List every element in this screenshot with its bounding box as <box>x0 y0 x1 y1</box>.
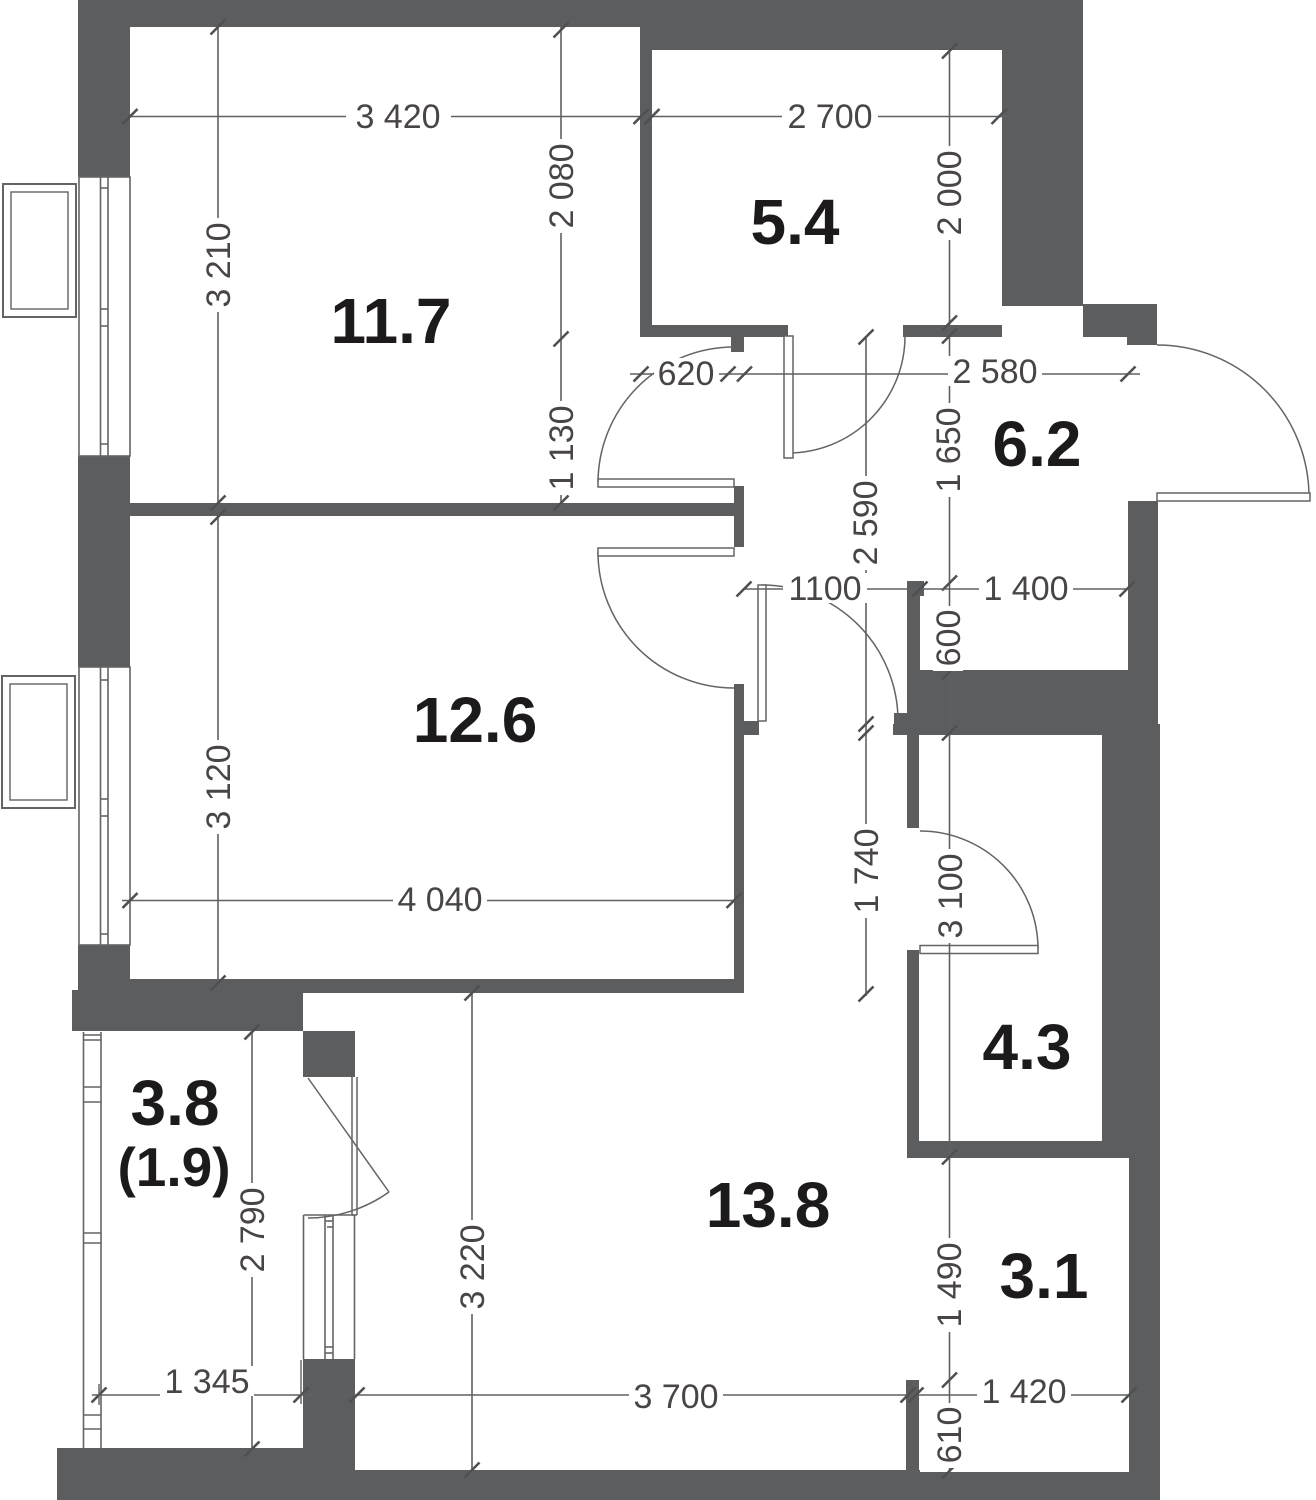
svg-text:13.8: 13.8 <box>706 1169 831 1241</box>
svg-text:1 400: 1 400 <box>983 570 1068 608</box>
svg-text:2 790: 2 790 <box>234 1187 272 1272</box>
svg-text:5.4: 5.4 <box>751 186 840 258</box>
svg-text:3 700: 3 700 <box>633 1378 718 1416</box>
svg-text:2 000: 2 000 <box>931 150 969 235</box>
svg-text:6.2: 6.2 <box>993 408 1082 480</box>
svg-text:1 650: 1 650 <box>930 407 968 492</box>
svg-text:620: 620 <box>658 355 715 393</box>
svg-text:3 120: 3 120 <box>200 744 238 829</box>
svg-text:3 420: 3 420 <box>355 98 440 136</box>
svg-text:1100: 1100 <box>788 570 861 608</box>
svg-text:2 580: 2 580 <box>952 353 1037 391</box>
svg-text:(1.9): (1.9) <box>117 1136 230 1198</box>
svg-text:1 740: 1 740 <box>848 828 886 913</box>
svg-text:600: 600 <box>930 610 968 667</box>
svg-text:2 590: 2 590 <box>847 480 885 565</box>
svg-text:3 220: 3 220 <box>454 1224 492 1309</box>
svg-text:3 100: 3 100 <box>932 853 970 938</box>
svg-text:610: 610 <box>931 1407 969 1464</box>
svg-text:3.1: 3.1 <box>1000 1240 1089 1312</box>
svg-text:1 420: 1 420 <box>981 1373 1066 1411</box>
svg-text:3 210: 3 210 <box>200 222 238 307</box>
svg-text:1 345: 1 345 <box>164 1363 249 1401</box>
svg-text:11.7: 11.7 <box>330 285 451 357</box>
svg-text:4 040: 4 040 <box>397 881 482 919</box>
svg-text:3.8: 3.8 <box>131 1067 220 1139</box>
svg-text:1 490: 1 490 <box>931 1242 969 1327</box>
svg-text:12.6: 12.6 <box>413 684 538 756</box>
svg-text:2 080: 2 080 <box>543 143 581 228</box>
svg-text:2 700: 2 700 <box>787 98 872 136</box>
svg-text:4.3: 4.3 <box>983 1011 1072 1083</box>
svg-text:1 130: 1 130 <box>543 405 581 490</box>
